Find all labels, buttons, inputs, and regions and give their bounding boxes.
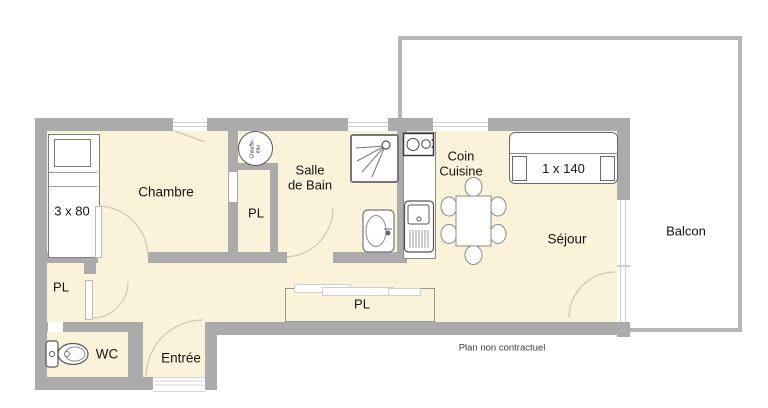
- door-arc-bathroom: [287, 208, 333, 257]
- door-arc-hall: [92, 282, 128, 318]
- room-label-coin-cuisine: Coin Cuisine: [439, 149, 482, 178]
- door-arc-entree: [146, 320, 203, 377]
- room-label-salle-de-bain: Salle de Bain: [288, 163, 332, 192]
- room-label-sejour: Séjour: [547, 231, 586, 246]
- room-label-pl-closet: PL: [248, 207, 264, 222]
- door-arc-balcony: [569, 272, 615, 318]
- dining-table-icon: [441, 178, 506, 265]
- bed-size-label: 3 x 80: [54, 205, 89, 220]
- window-opening-line: [175, 131, 205, 142]
- shower-head-icon: [356, 141, 390, 177]
- bathroom-sink-icon: [363, 210, 394, 252]
- toilet-icon: [46, 341, 88, 367]
- room-label-pl-hall: PL: [53, 281, 69, 296]
- room-label-pl-corridor: PL: [354, 298, 370, 313]
- room-label-entree: Entrée: [161, 350, 201, 365]
- entry-threshold-lines: [154, 381, 204, 385]
- room-label-balcon: Balcon: [666, 225, 706, 240]
- kitchen-sink-icon: [405, 201, 434, 252]
- room-label-wc: WC: [96, 346, 119, 361]
- cooktop-icon: [404, 134, 434, 156]
- room-label-chambre: Chambre: [138, 184, 194, 199]
- door-arc-chambre: [98, 206, 148, 257]
- floor-plan: Chauffe- eau 1 x 140: [0, 0, 768, 408]
- disclaimer-text: Plan non contractuel: [459, 344, 546, 355]
